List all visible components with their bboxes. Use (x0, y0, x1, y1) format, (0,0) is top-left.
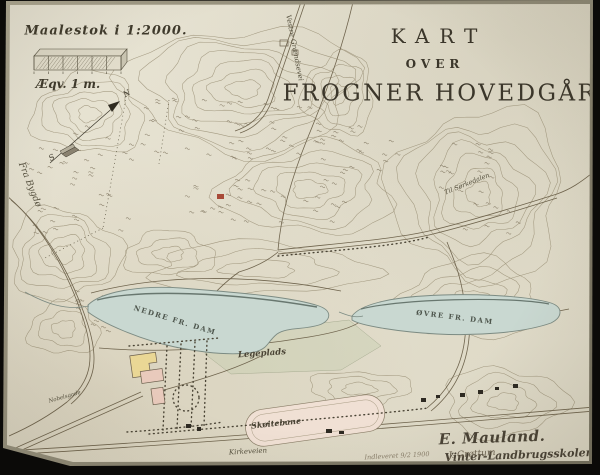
equidistance-caption: Æqv. 1 m. (36, 78, 100, 90)
road-label-nobelsgade: Nobelsgade (48, 391, 81, 405)
road-label-kirkeveien: Kirkeveien (229, 448, 268, 457)
road-label-fra-bygdo: Fra Bygdø (16, 161, 42, 208)
credit-note: Indleveret 9/2 1900 (364, 451, 429, 461)
pond-label-nedre-dam: NEDRE FR. DAM (133, 304, 217, 336)
scanned-map-photo: KART OVER FROGNER HOVEDGÅRD. Maalestok i… (0, 0, 600, 475)
map-labels: KART OVER FROGNER HOVEDGÅRD. Maalestok i… (9, 4, 591, 462)
title-name: FROGNER HOVEDGÅRD. (283, 83, 600, 106)
compass-north-label: N (122, 89, 132, 99)
road-label-til-sorkedalen: Til Sørkedalen (444, 172, 491, 196)
scale-caption: Maalestok i 1:2000. (25, 25, 188, 38)
place-label-skoitebane: Skøitebane (251, 416, 302, 429)
place-label-legeplads: Legeplads (238, 348, 287, 360)
title-kart: KART (391, 26, 488, 46)
road-label-vestre-graendsevei: Vestre Grændsevei (284, 14, 304, 81)
title-over: OVER (406, 58, 465, 70)
pond-label-ovre-dam: ØVRE FR. DAM (416, 309, 494, 325)
compass-south-label: S (48, 153, 57, 163)
map-paper: KART OVER FROGNER HOVEDGÅRD. Maalestok i… (0, 0, 600, 475)
credit-author: E. Mauland. (438, 429, 545, 448)
